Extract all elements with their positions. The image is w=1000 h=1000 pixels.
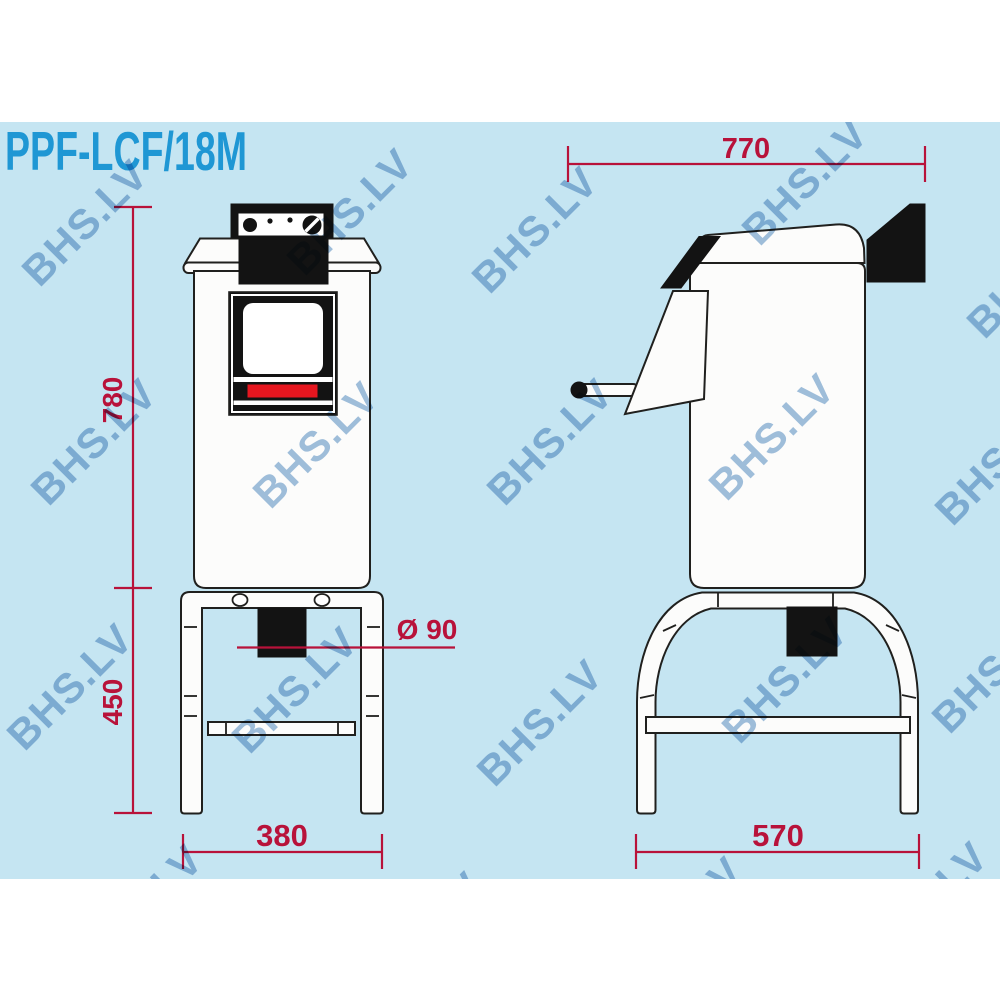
door-divider-top [234, 377, 333, 382]
door-red-handle-bar [247, 384, 318, 398]
discharge-chute-front [258, 608, 306, 657]
inspection-door [229, 292, 337, 415]
indicator-dot-icon [267, 218, 272, 223]
dimension-label-570: 570 [752, 818, 804, 853]
power-button-icon [243, 218, 257, 232]
door-window [243, 303, 323, 374]
door-divider-bottom [234, 401, 333, 406]
indicator-dot-icon [287, 217, 292, 222]
vegetable-peeler-dimension-drawing: 780 450 [0, 0, 1000, 1000]
dimension-label-770: 770 [722, 133, 770, 165]
frame-bolt-hole [233, 594, 248, 606]
frame-bolt-hole [315, 594, 330, 606]
dimension-label-380: 380 [256, 818, 308, 853]
dimension-label-outlet: Ø 90 [397, 614, 458, 645]
technical-diagram-page: 780 450 [0, 0, 1000, 1000]
